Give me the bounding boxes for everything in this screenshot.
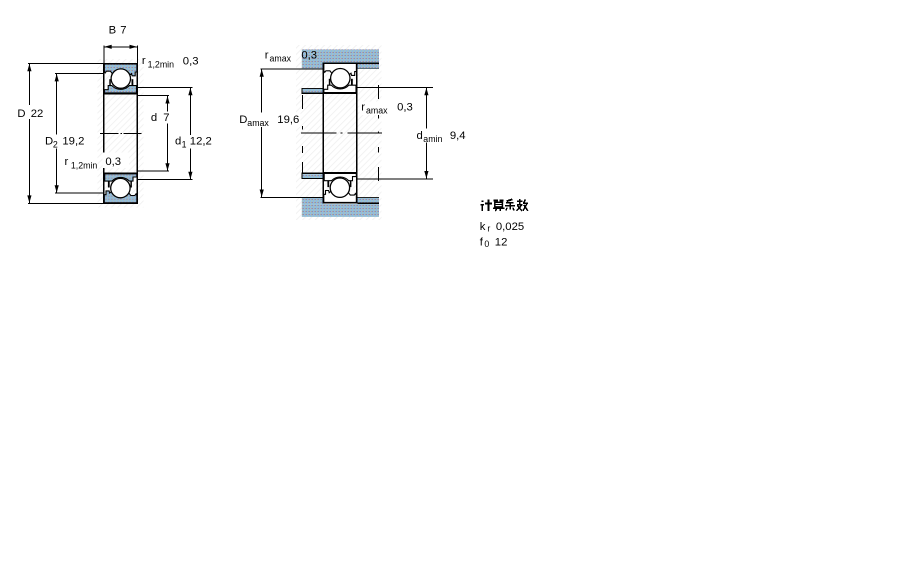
svg-text:19,2: 19,2: [62, 136, 84, 148]
svg-text:amax: amax: [247, 118, 269, 128]
svg-text:12: 12: [495, 236, 508, 248]
svg-text:2: 2: [53, 140, 58, 150]
svg-text:0: 0: [484, 239, 489, 249]
svg-text:0,3: 0,3: [397, 101, 413, 113]
svg-text:12,2: 12,2: [190, 136, 212, 148]
svg-text:r: r: [487, 224, 490, 234]
svg-text:7: 7: [120, 25, 126, 37]
svg-text:1,2min: 1,2min: [71, 161, 98, 171]
svg-text:0,3: 0,3: [183, 55, 199, 67]
svg-text:r: r: [361, 101, 365, 113]
svg-text:B: B: [109, 25, 117, 37]
svg-text:19,6: 19,6: [277, 114, 299, 126]
svg-text:9,4: 9,4: [450, 130, 466, 142]
svg-text:amin: amin: [423, 134, 442, 144]
svg-text:0,3: 0,3: [301, 50, 317, 62]
svg-text:1: 1: [182, 140, 187, 150]
svg-text:1,2min: 1,2min: [148, 60, 175, 70]
svg-text:d: d: [175, 136, 181, 148]
svg-text:D: D: [239, 114, 247, 126]
svg-text:0,025: 0,025: [496, 221, 524, 233]
svg-text:d: d: [417, 130, 423, 142]
svg-text:22: 22: [31, 108, 44, 120]
svg-text:r: r: [65, 156, 69, 168]
svg-text:d: d: [151, 112, 157, 124]
svg-text:7: 7: [163, 112, 169, 124]
svg-text:D: D: [17, 108, 25, 120]
svg-text:r: r: [142, 55, 146, 67]
svg-text:amax: amax: [270, 54, 292, 64]
svg-text:amax: amax: [366, 106, 388, 116]
svg-text:k: k: [480, 221, 486, 233]
svg-text:0,3: 0,3: [105, 156, 121, 168]
svg-text:r: r: [265, 49, 269, 61]
